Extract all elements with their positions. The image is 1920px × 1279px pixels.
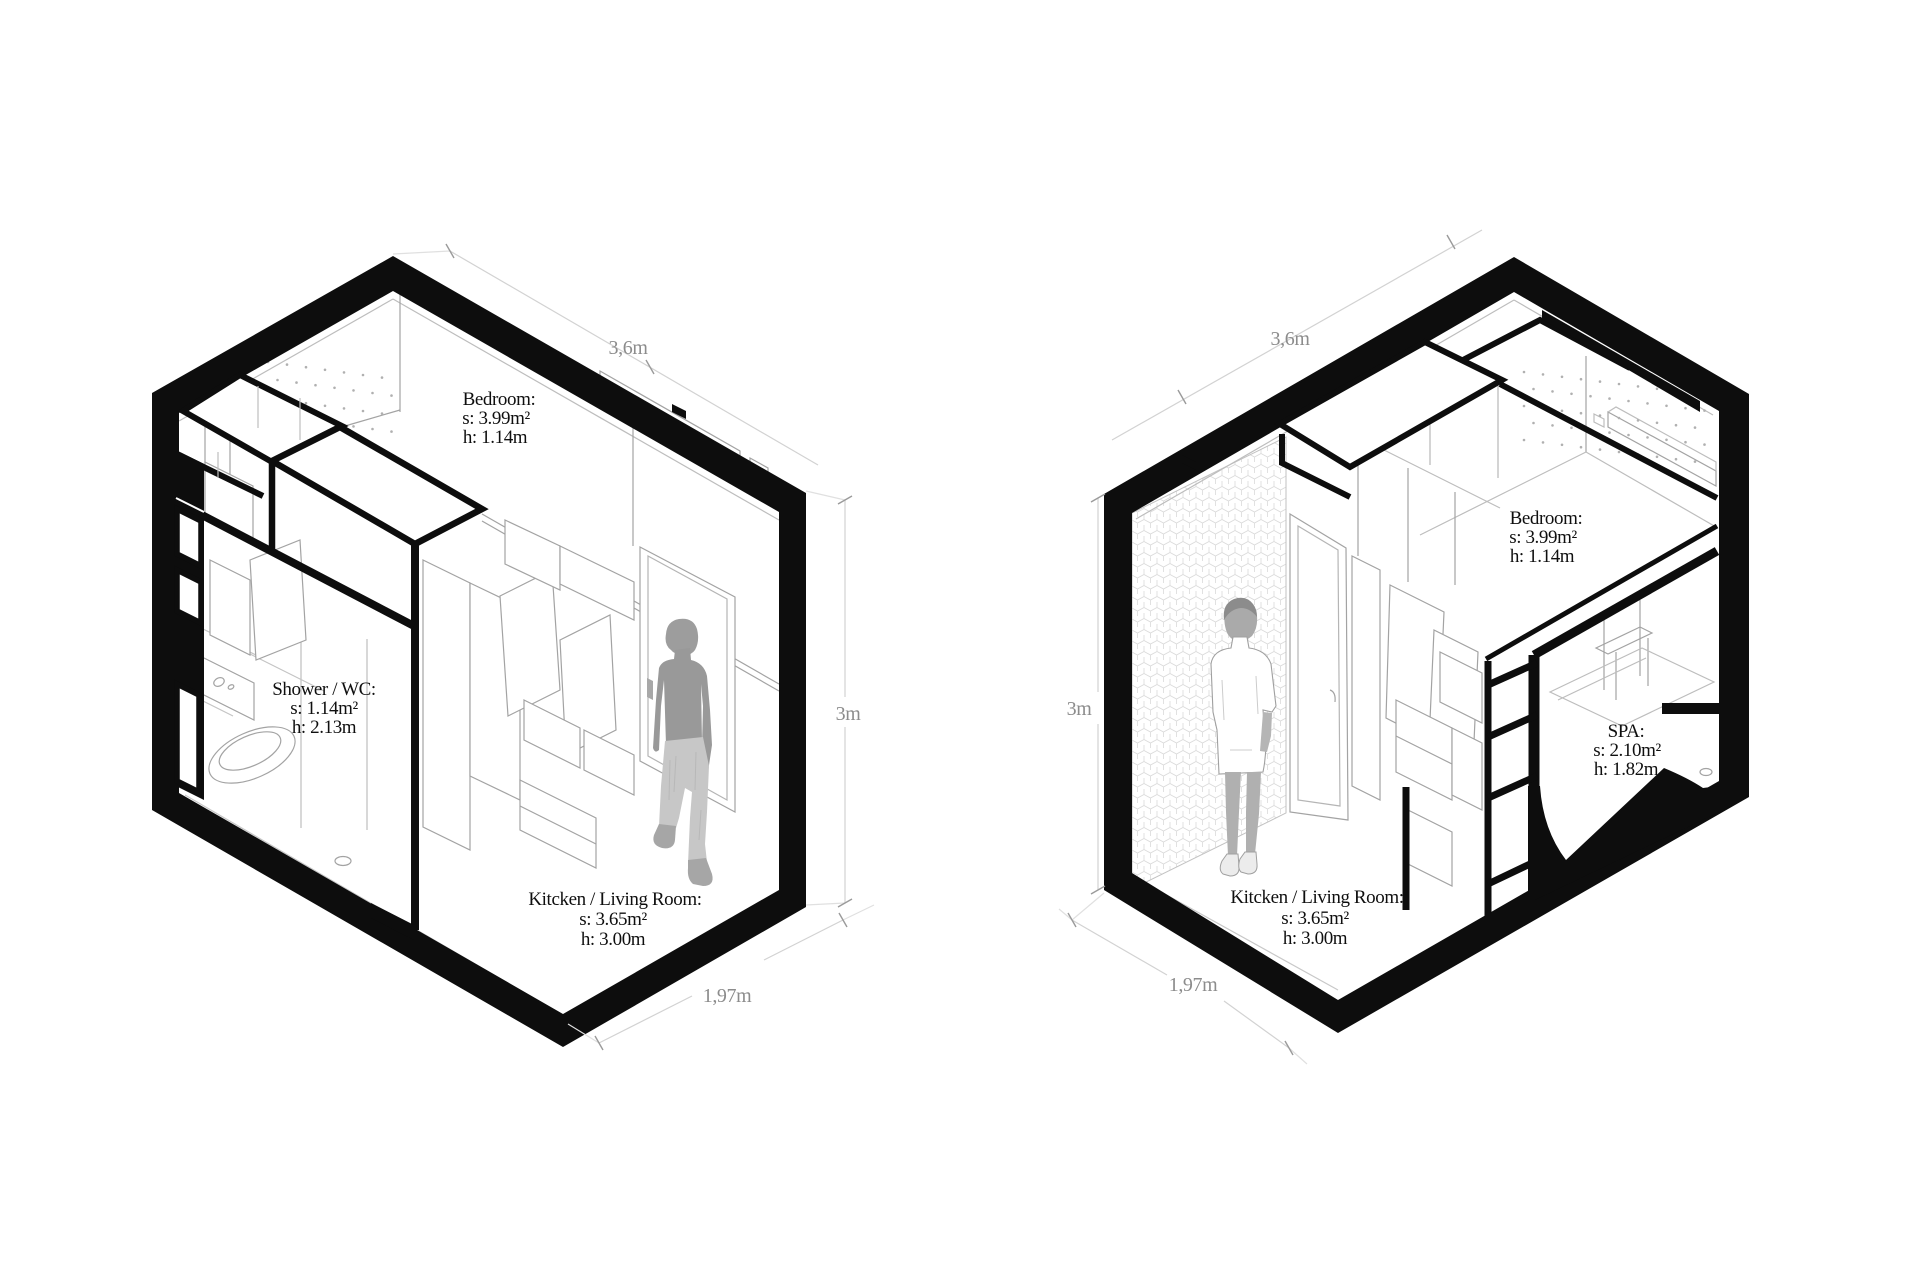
svg-text:3m: 3m xyxy=(1067,698,1093,720)
svg-text:s: 3.65m²: s: 3.65m² xyxy=(1281,908,1349,929)
svg-text:h: 1.82m: h: 1.82m xyxy=(1594,759,1659,780)
svg-text:Bedroom:: Bedroom: xyxy=(463,389,536,410)
svg-text:s: 3.99m²: s: 3.99m² xyxy=(1509,527,1577,548)
svg-text:SPA:: SPA: xyxy=(1608,721,1645,742)
svg-text:3m: 3m xyxy=(836,703,862,725)
svg-text:3,6m: 3,6m xyxy=(1271,328,1311,350)
svg-text:1,97m: 1,97m xyxy=(1169,974,1218,996)
svg-text:Bedroom:: Bedroom: xyxy=(1510,508,1583,529)
svg-text:s: 3.99m²: s: 3.99m² xyxy=(462,408,530,429)
svg-text:h: 3.00m: h: 3.00m xyxy=(1283,928,1348,949)
svg-text:Kitcken / Living Room:: Kitcken / Living Room: xyxy=(1230,887,1403,908)
svg-text:h: 2.13m: h: 2.13m xyxy=(292,717,357,738)
svg-text:h: 1.14m: h: 1.14m xyxy=(1510,546,1575,567)
svg-text:1,97m: 1,97m xyxy=(703,985,752,1007)
svg-text:s: 3.65m²: s: 3.65m² xyxy=(579,909,647,930)
svg-text:h: 3.00m: h: 3.00m xyxy=(581,929,646,950)
svg-text:Shower / WC:: Shower / WC: xyxy=(272,679,376,700)
svg-text:s: 2.10m²: s: 2.10m² xyxy=(1593,740,1661,761)
svg-text:3,6m: 3,6m xyxy=(609,337,649,359)
svg-text:s: 1.14m²: s: 1.14m² xyxy=(290,698,358,719)
svg-text:h: 1.14m: h: 1.14m xyxy=(463,427,528,448)
svg-text:Kitcken / Living Room:: Kitcken / Living Room: xyxy=(528,889,701,910)
